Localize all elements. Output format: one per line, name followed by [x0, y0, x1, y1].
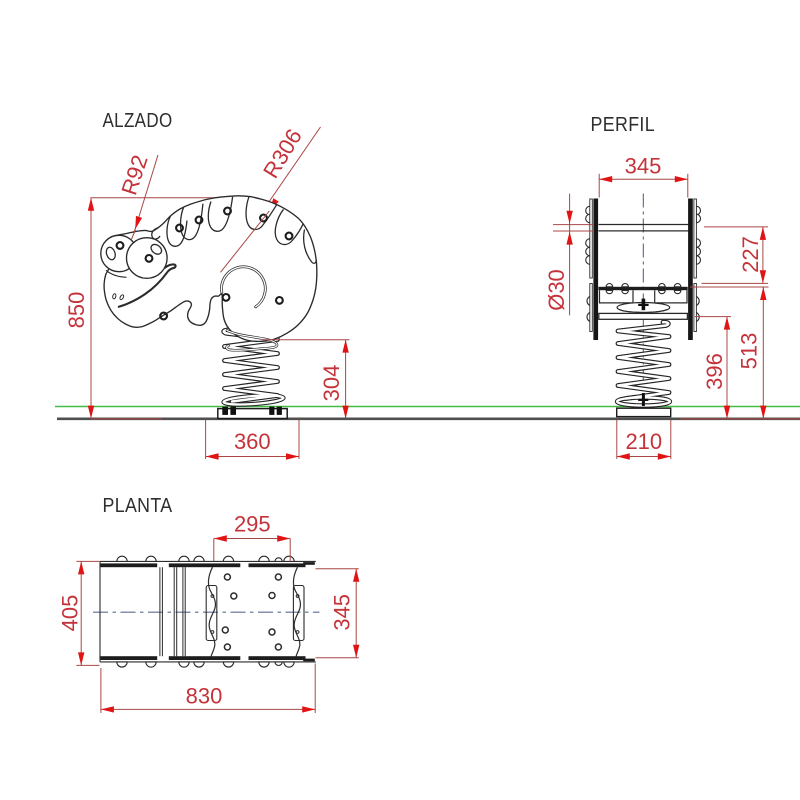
svg-text:850: 850	[64, 292, 89, 329]
svg-text:513: 513	[736, 333, 761, 370]
svg-text:405: 405	[57, 595, 82, 632]
svg-text:R306: R306	[258, 125, 307, 183]
svg-text:227: 227	[738, 236, 763, 273]
svg-text:360: 360	[234, 429, 271, 454]
svg-text:295: 295	[234, 512, 271, 537]
svg-text:830: 830	[186, 683, 223, 708]
svg-text:PLANTA: PLANTA	[103, 495, 173, 517]
svg-text:Ø30: Ø30	[544, 269, 569, 311]
svg-text:345: 345	[330, 594, 355, 631]
svg-text:304: 304	[319, 365, 344, 402]
svg-text:396: 396	[702, 353, 727, 390]
svg-text:PERFIL: PERFIL	[591, 114, 656, 136]
svg-text:345: 345	[625, 153, 662, 178]
svg-text:210: 210	[625, 429, 662, 454]
svg-text:ALZADO: ALZADO	[103, 110, 173, 132]
